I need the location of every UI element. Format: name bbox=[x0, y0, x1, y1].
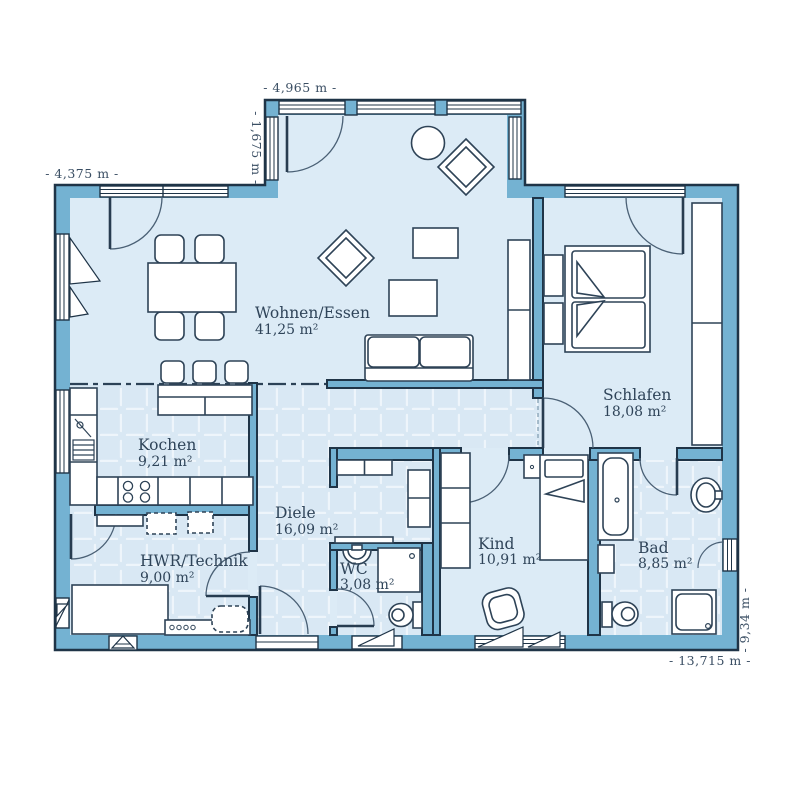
kind-wardrobe-icon bbox=[441, 453, 470, 568]
bedroom-window bbox=[565, 186, 685, 197]
svg-text:Schlafen: Schlafen bbox=[603, 386, 671, 404]
dimension-bay-left: - 1,675 m - bbox=[249, 111, 264, 185]
svg-text:41,25 m²: 41,25 m² bbox=[255, 322, 318, 338]
wc-toilet-icon bbox=[389, 602, 422, 628]
svg-text:9,00 m²: 9,00 m² bbox=[140, 570, 195, 586]
svg-text:10,91 m²: 10,91 m² bbox=[478, 552, 541, 568]
svg-text:Diele: Diele bbox=[275, 504, 316, 522]
dimension-left: - 4,375 m - bbox=[45, 166, 119, 181]
toilet-icon bbox=[602, 602, 638, 627]
shower-icon bbox=[672, 590, 716, 634]
sideboard-icon bbox=[508, 240, 530, 380]
washbasin-icon bbox=[691, 478, 722, 512]
sofa-icon bbox=[365, 335, 473, 381]
svg-text:Wohnen/Essen: Wohnen/Essen bbox=[255, 304, 370, 322]
svg-text:8,85 m²: 8,85 m² bbox=[638, 556, 693, 572]
svg-text:WC: WC bbox=[340, 560, 368, 578]
svg-text:HWR/Technik: HWR/Technik bbox=[140, 552, 248, 570]
dimension-right: - 9,34 m - bbox=[737, 587, 752, 652]
bedroom-wardrobe-icon bbox=[692, 203, 722, 445]
bar-stools-icon bbox=[161, 361, 248, 383]
svg-text:9,21 m²: 9,21 m² bbox=[138, 454, 193, 470]
svg-text:Kind: Kind bbox=[478, 535, 515, 553]
dimension-top: - 4,965 m - bbox=[263, 80, 337, 95]
dimension-bottom: - 13,715 m - bbox=[669, 653, 751, 668]
tv-board-icon bbox=[389, 280, 437, 316]
entrance-threshold bbox=[256, 636, 318, 649]
vent-flue-symbol bbox=[56, 598, 69, 628]
kitchen-island-icon bbox=[158, 385, 252, 415]
room-label-schlafen: Schlafen 18,08 m² bbox=[603, 386, 671, 420]
svg-text:16,09 m²: 16,09 m² bbox=[275, 522, 338, 538]
living-top-window bbox=[100, 186, 228, 197]
svg-text:Bad: Bad bbox=[638, 539, 669, 557]
hwr-vent-window bbox=[109, 636, 137, 650]
coffee-table-icon bbox=[413, 228, 458, 258]
room-label-kochen: Kochen 9,21 m² bbox=[138, 436, 196, 470]
bath-cabinet-icon bbox=[598, 545, 614, 573]
svg-text:Kochen: Kochen bbox=[138, 436, 196, 454]
side-table-icon bbox=[412, 127, 445, 160]
bay-window-band bbox=[279, 100, 521, 115]
bathtub-icon bbox=[598, 453, 633, 540]
floor-plan: Wohnen/Essen 41,25 m² Schlafen 18,08 m² … bbox=[0, 0, 800, 800]
svg-text:3,08 m²: 3,08 m² bbox=[340, 577, 395, 593]
floor-plan-page: Wohnen/Essen 41,25 m² Schlafen 18,08 m² … bbox=[0, 0, 800, 800]
svg-text:18,08 m²: 18,08 m² bbox=[603, 404, 666, 420]
